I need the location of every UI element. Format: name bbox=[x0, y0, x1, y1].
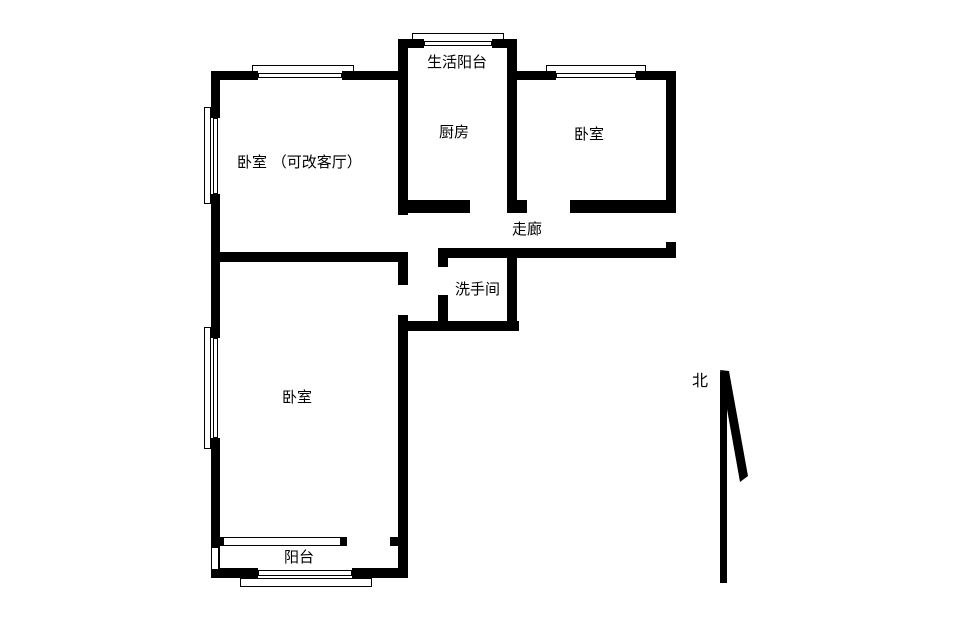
wall-bathroom-left-top bbox=[438, 248, 448, 267]
wall-kitchen-left bbox=[398, 39, 408, 215]
wall-bathroom-bottom bbox=[398, 321, 519, 331]
window-top-right-pane bbox=[556, 73, 636, 78]
wall-kitchen-bottom-right bbox=[507, 200, 527, 213]
room-label-bedroom-bottom: 卧室 bbox=[282, 389, 312, 406]
room-label-bathroom: 洗手间 bbox=[455, 281, 500, 298]
window-top-right-cap bbox=[636, 71, 642, 80]
window-left-upper-cap bbox=[211, 194, 220, 200]
wall-bedroom-tr-bottom bbox=[570, 200, 676, 213]
wall-balcony-divider-right-cap bbox=[340, 537, 347, 546]
room-label-service-balcony: 生活阳台 bbox=[427, 54, 487, 71]
wall-corridor-bottom bbox=[438, 248, 676, 258]
wall-room-divider bbox=[211, 252, 408, 262]
window-balcony-bottom-pane bbox=[258, 570, 352, 576]
window-left-lower-pane bbox=[213, 338, 218, 438]
floor-plan: 生活阳台 厨房 卧室 卧室 （可改客厅） 走廊 洗手间 卧室 阳台 北 bbox=[0, 0, 960, 636]
wall-kitchen-bottom-left bbox=[398, 200, 470, 213]
window-left-lower-outer-frame bbox=[204, 327, 211, 449]
room-label-balcony: 阳台 bbox=[284, 549, 314, 566]
window-top-left-pane bbox=[258, 73, 342, 78]
window-left-upper-outer-frame bbox=[204, 107, 211, 204]
room-label-bedroom-top-left: 卧室 （可改客厅） bbox=[237, 154, 362, 171]
window-balcony-divider bbox=[224, 537, 340, 546]
room-label-corridor: 走廊 bbox=[512, 221, 542, 238]
wall-kitchen-right bbox=[507, 39, 517, 213]
window-top-left-cap bbox=[342, 71, 348, 80]
window-balcony-bottom-sill bbox=[240, 578, 372, 587]
window-service-balcony-pane bbox=[424, 41, 492, 46]
window-left-upper-pane bbox=[213, 118, 218, 194]
window-balcony-bottom-cap bbox=[352, 568, 358, 578]
room-label-kitchen: 厨房 bbox=[439, 124, 469, 141]
wall-balcony-door-cap bbox=[390, 537, 400, 546]
wall-mid-stub-upper bbox=[398, 252, 408, 285]
room-label-bedroom-top-right: 卧室 bbox=[574, 126, 604, 143]
window-balcony-left bbox=[211, 547, 219, 570]
wall-corridor-right-stub bbox=[666, 242, 676, 258]
window-left-lower-cap bbox=[211, 438, 220, 444]
north-arrow-icon bbox=[688, 362, 758, 587]
window-service-balcony-cap bbox=[492, 39, 498, 48]
wall-outer-right bbox=[666, 71, 676, 213]
wall-bathroom-right bbox=[507, 248, 517, 331]
